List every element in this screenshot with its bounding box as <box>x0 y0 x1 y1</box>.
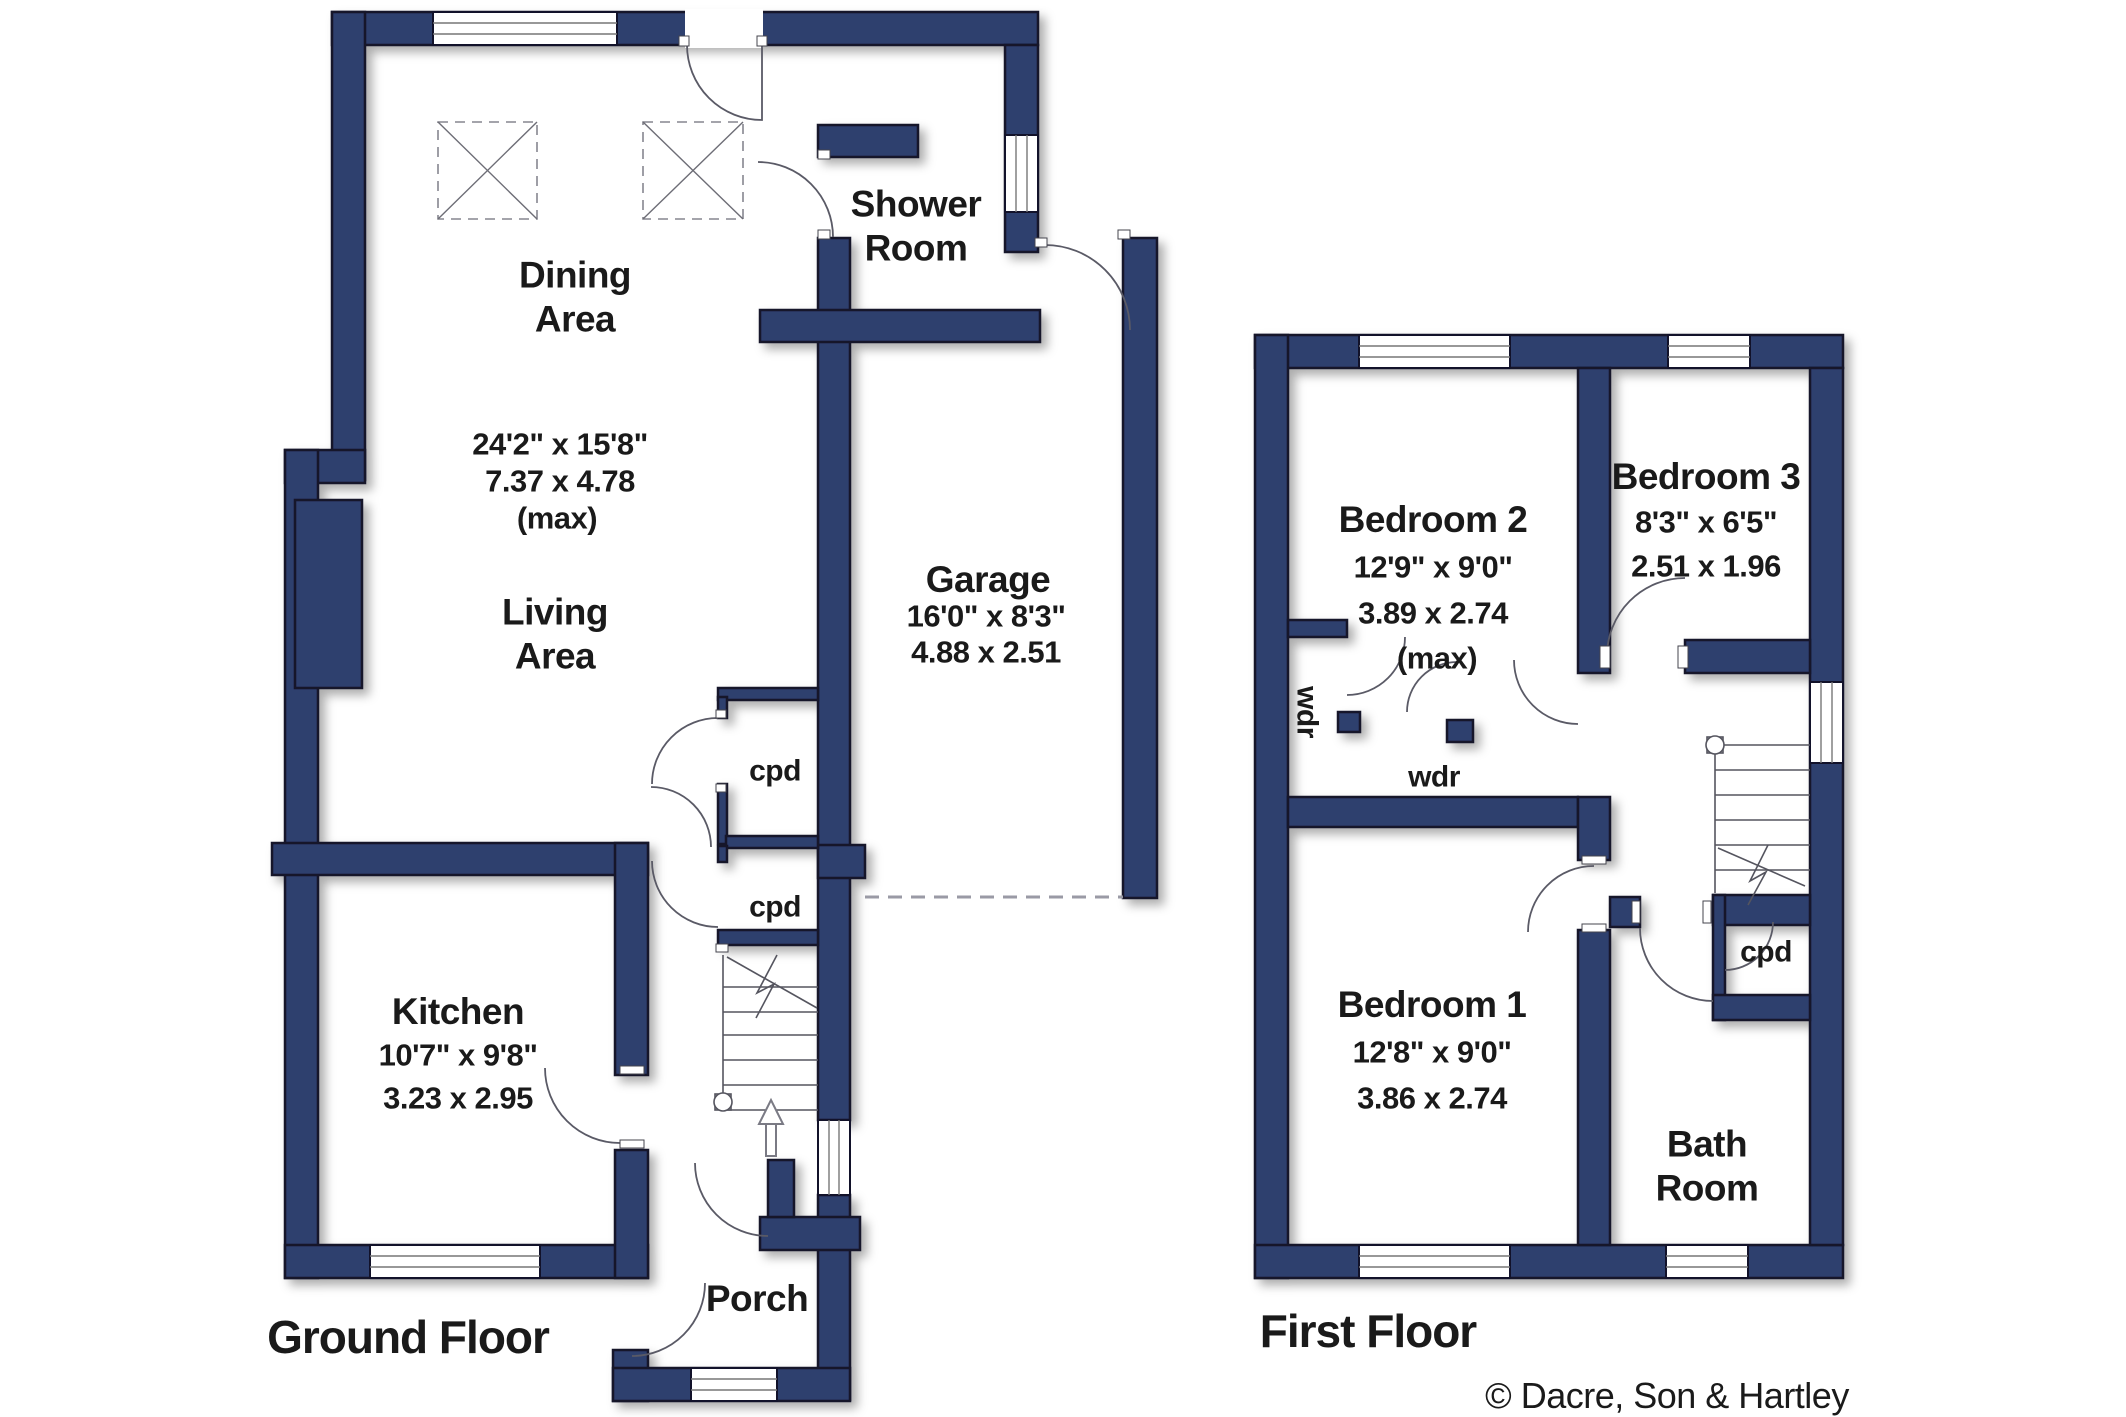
kitchen-label: Kitchen <box>392 990 524 1034</box>
skylight-right <box>643 122 743 219</box>
dining-area-dims-metric: 7.37 x 4.78 <box>485 464 635 501</box>
garage-dims-imperial: 16'0" x 8'3" <box>907 599 1066 636</box>
bedroom3-label: Bedroom 3 <box>1612 455 1801 499</box>
shower-room-door-arc <box>758 162 833 237</box>
cupboard-top-label: cpd <box>749 753 801 788</box>
kitchen-dims-metric: 3.23 x 2.95 <box>383 1081 533 1118</box>
bedroom3-dims-imperial: 8'3" x 6'5" <box>1635 505 1777 542</box>
garage-dims-metric: 4.88 x 2.51 <box>911 635 1061 672</box>
dining-window <box>433 12 617 45</box>
cupboard-first-floor-label: cpd <box>1740 934 1792 969</box>
kitchen-door-arc <box>545 1068 620 1143</box>
kitchen-dims-imperial: 10'7" x 9'8" <box>379 1038 538 1075</box>
chimney-breast <box>295 500 362 688</box>
bedroom2-dims-metric: 3.89 x 2.74 <box>1358 596 1508 633</box>
bedroom2-label: Bedroom 2 <box>1339 498 1528 542</box>
ground-floor-walls <box>272 12 1157 1401</box>
ground-floor-plan <box>272 9 1157 1401</box>
bedroom1-window <box>1359 1245 1510 1278</box>
ground-floor-stairs <box>714 955 818 1156</box>
kitchen-window <box>370 1245 540 1278</box>
bathroom-label: Bath Room <box>1640 1122 1775 1209</box>
dining-area-dims-imperial: 24'2" x 15'8" <box>472 427 648 464</box>
bedroom3-window <box>1668 335 1750 368</box>
bedroom2-door-arc <box>1514 660 1578 724</box>
landing-window <box>1810 682 1843 763</box>
porch-door-arc <box>632 1283 705 1356</box>
cupboard-bottom-label: cpd <box>749 889 801 924</box>
bathroom-door-arc <box>1640 928 1713 1001</box>
bedroom3-door-arc <box>1607 578 1685 656</box>
entrance-door-opening <box>685 9 763 48</box>
dining-area-dims-note: (max) <box>517 501 597 538</box>
cupboard-top-door-arc <box>652 718 718 784</box>
floorplan-drawing <box>0 0 2126 1417</box>
bedroom2-window <box>1359 335 1510 368</box>
bedroom1-dims-metric: 3.86 x 2.74 <box>1357 1081 1507 1118</box>
bedroom1-label: Bedroom 1 <box>1338 983 1527 1027</box>
bedroom2-dims-note: (max) <box>1397 641 1477 678</box>
bathroom-window <box>1666 1245 1748 1278</box>
bedroom1-dims-imperial: 12'8" x 9'0" <box>1353 1035 1512 1072</box>
stairs-up-arrow <box>759 1100 783 1156</box>
porch-window <box>691 1368 777 1401</box>
bedroom3-dims-metric: 2.51 x 1.96 <box>1631 549 1781 586</box>
ground-floor-title: Ground Floor <box>267 1310 549 1364</box>
inner-front-door-arc <box>695 1163 768 1236</box>
first-floor-title: First Floor <box>1260 1304 1476 1358</box>
garage-door-arc <box>1045 245 1130 330</box>
shower-room-window <box>1005 135 1038 212</box>
floorplan-canvas: Dining Area 24'2" x 15'8" 7.37 x 4.78 (m… <box>0 0 2126 1417</box>
copyright-notice: © Dacre, Son & Hartley <box>1485 1375 1849 1417</box>
wardrobe-left-label: wdr <box>1289 686 1324 738</box>
hall-window <box>818 1120 850 1195</box>
bedroom2-dims-imperial: 12'9" x 9'0" <box>1354 550 1513 587</box>
first-floor-door-jambs <box>1582 646 1711 932</box>
cupboard-bottom-door-arc <box>652 861 718 927</box>
dining-area-label: Dining Area <box>485 253 665 340</box>
entrance-door-arc <box>687 45 762 120</box>
bedroom1-door-arc <box>1528 866 1594 932</box>
shower-room-label: Shower Room <box>824 182 1009 269</box>
porch-label: Porch <box>706 1277 808 1321</box>
skylight-symbols <box>438 122 743 219</box>
first-floor-stairs <box>1706 736 1810 905</box>
skylight-left <box>438 122 537 219</box>
living-area-label: Living Area <box>485 590 625 677</box>
garage-label: Garage <box>926 558 1051 602</box>
wardrobe-middle-label: wdr <box>1408 759 1460 794</box>
hall-door-arc <box>651 787 711 847</box>
